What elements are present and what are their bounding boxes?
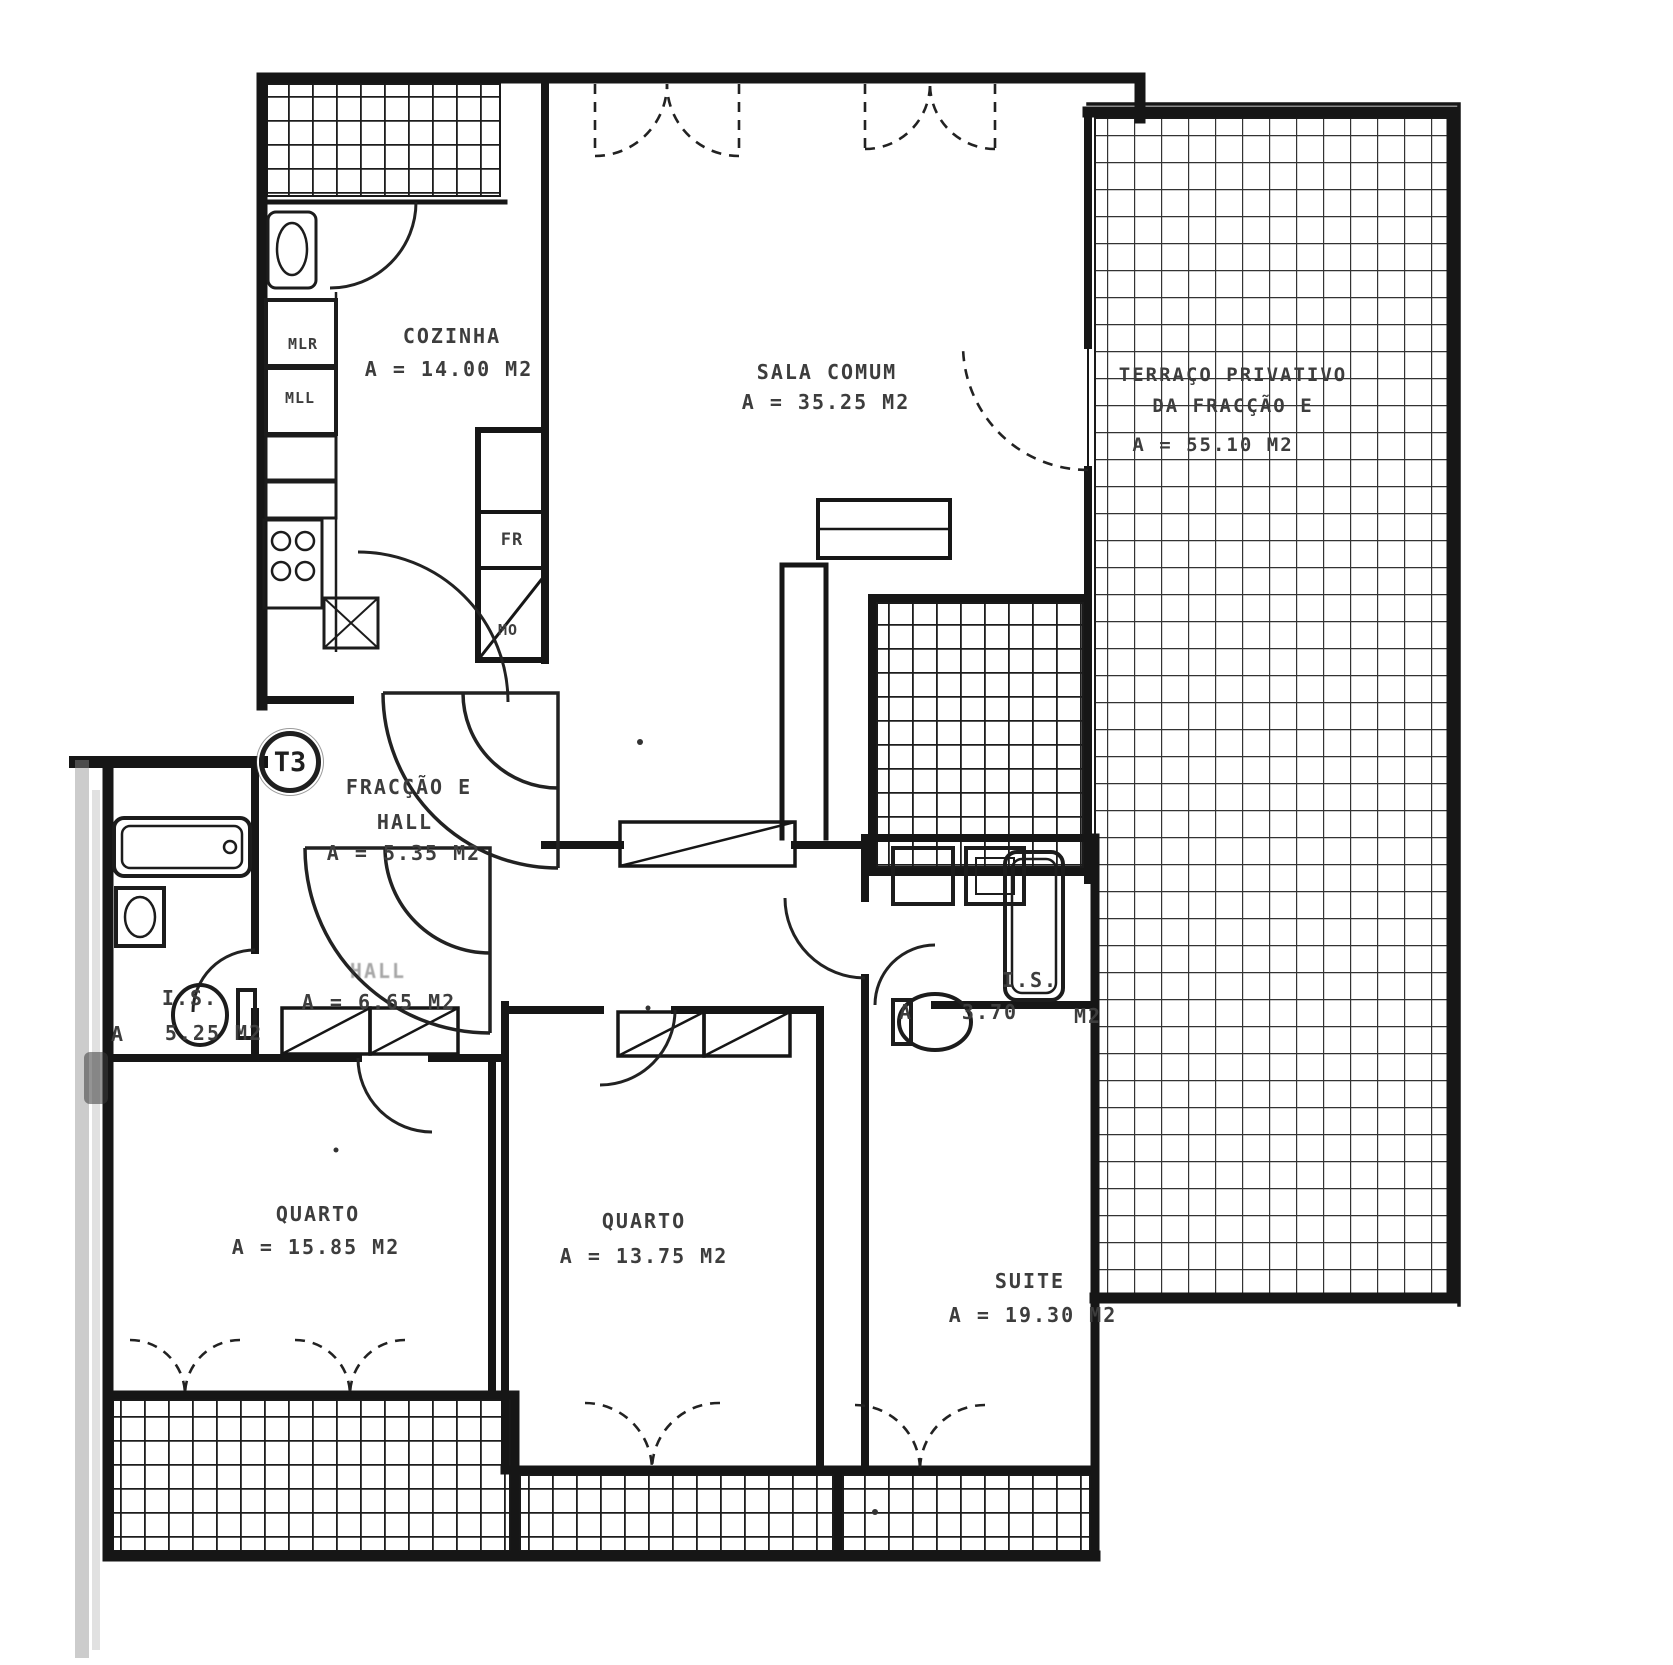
stove [264, 520, 322, 608]
room-area-is-suite: 3.70 [962, 1000, 1018, 1024]
room-area-cozinha: A = 14.00 M2 [365, 357, 534, 381]
left-balcony-tiles [113, 1400, 510, 1551]
room-label-is-left: I.S. [162, 986, 218, 1010]
terrace-tiles [1095, 118, 1448, 1294]
room-area-hall: A = 6.65 M2 [302, 990, 456, 1014]
appliance-label-mll: MLL [285, 389, 315, 407]
room-area-prefix-is-left: A [111, 1022, 125, 1046]
appliance-label-mlr: MLR [288, 335, 318, 353]
appliance-label-mo: MO [498, 621, 518, 639]
room-label-is-suite: I.S. [1002, 968, 1058, 992]
room-area-sala-comum: A = 35.25 M2 [742, 390, 911, 414]
room-label-suite: SUITE [995, 1269, 1065, 1293]
floorplan-drawing [0, 0, 1673, 1665]
room-area-suite: A = 19.30 M2 [949, 1303, 1118, 1327]
room-label-terraco-line2: DA FRACÇÃO E [1152, 395, 1313, 417]
room-area-prefix-is-suite: A [899, 1000, 913, 1024]
room-label-fraccao: FRACÇÃO E [346, 775, 472, 799]
suite-balcony-tiles [843, 1475, 1090, 1551]
room-area-quarto-1: A = 15.85 M2 [232, 1235, 401, 1259]
room-area-unit-is-suite: M2 [1074, 1004, 1102, 1028]
room-label-quarto-2: QUARTO [602, 1209, 686, 1233]
washer-mlr [266, 300, 336, 366]
room-area-entry-hall: A = 5.35 M2 [327, 841, 481, 865]
kitchen-balcony-tiles [267, 84, 500, 196]
room-label-hall: HALL [350, 959, 406, 983]
room-label-entry-hall: HALL [377, 810, 433, 834]
unit-type-badge: T3 [259, 731, 321, 793]
room-label-cozinha: COZINHA [403, 324, 501, 348]
room-label-sala-comum: SALA COMUM [757, 360, 897, 384]
room-label-quarto-1: QUARTO [276, 1202, 360, 1226]
room-area-quarto-2: A = 13.75 M2 [560, 1244, 729, 1268]
room-area-is-left: 5.25 M2 [165, 1021, 263, 1045]
room-label-terraco-line1: TERRAÇO PRIVATIVO [1119, 364, 1347, 386]
floor-plan: COZINHA A = 14.00 M2 SALA COMUM A = 35.2… [0, 0, 1673, 1665]
unit-type-label: T3 [274, 747, 307, 778]
center-balcony-tiles [520, 1475, 833, 1551]
room-area-terraco: A = 55.10 M2 [1132, 434, 1293, 456]
courtyard-tiles [877, 603, 1083, 867]
appliance-label-fr: FR [501, 530, 523, 550]
